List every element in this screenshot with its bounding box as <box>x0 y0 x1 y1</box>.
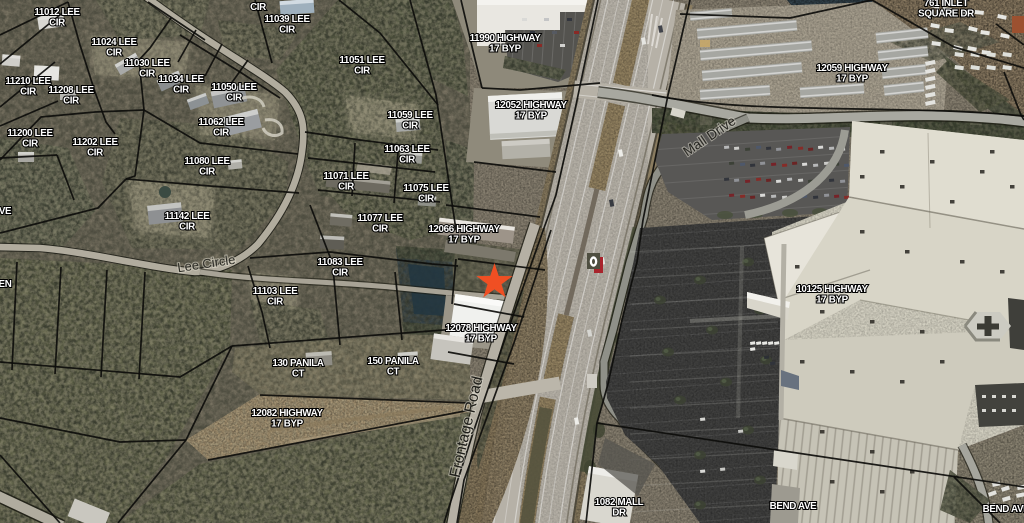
svg-text:BEND AVE: BEND AVE <box>983 504 1024 515</box>
svg-text:1082 MALL: 1082 MALL <box>595 497 644 508</box>
svg-text:11990 HIGHWAY: 11990 HIGHWAY <box>470 33 542 44</box>
svg-text:DR: DR <box>612 508 626 519</box>
svg-text:CIR: CIR <box>354 66 370 77</box>
svg-text:11050 LEE: 11050 LEE <box>211 82 257 93</box>
svg-text:11077 LEE: 11077 LEE <box>357 213 403 224</box>
svg-text:11071 LEE: 11071 LEE <box>323 171 369 182</box>
svg-text:130 PANILA: 130 PANILA <box>272 358 324 369</box>
svg-text:17 BYP: 17 BYP <box>448 235 480 246</box>
svg-text:CIR: CIR <box>20 87 36 98</box>
svg-text:12078 HIGHWAY: 12078 HIGHWAY <box>445 323 517 334</box>
svg-text:CIR: CIR <box>418 194 434 205</box>
svg-text:CIR: CIR <box>279 25 295 36</box>
svg-text:12059 HIGHWAY: 12059 HIGHWAY <box>816 63 888 74</box>
svg-text:11059 LEE: 11059 LEE <box>387 110 433 121</box>
svg-text:17 BYP: 17 BYP <box>515 111 547 122</box>
svg-text:CIR: CIR <box>399 155 415 166</box>
svg-text:CIR: CIR <box>226 93 242 104</box>
svg-text:SQUARE DR: SQUARE DR <box>918 9 974 20</box>
svg-text:CIR: CIR <box>372 224 388 235</box>
svg-text:11062 LEE: 11062 LEE <box>198 117 244 128</box>
svg-text:CIR: CIR <box>338 182 354 193</box>
svg-text:CIR: CIR <box>179 222 195 233</box>
svg-text:CT: CT <box>292 369 305 380</box>
svg-text:11051 LEE: 11051 LEE <box>339 55 385 66</box>
svg-text:11075 LEE: 11075 LEE <box>403 183 449 194</box>
svg-text:CIR: CIR <box>402 121 418 132</box>
svg-text:12066 HIGHWAY: 12066 HIGHWAY <box>428 224 500 235</box>
svg-text:11202 LEE: 11202 LEE <box>72 137 118 148</box>
svg-text:CIR: CIR <box>49 18 65 29</box>
svg-text:17 BYP: 17 BYP <box>816 295 848 306</box>
svg-text:11083 LEE: 11083 LEE <box>317 257 363 268</box>
svg-text:11210 LEE: 11210 LEE <box>5 76 51 87</box>
svg-text:11039 LEE: 11039 LEE <box>264 14 310 25</box>
svg-text:CIR: CIR <box>22 139 38 150</box>
svg-text:11103 LEE: 11103 LEE <box>253 286 299 297</box>
svg-text:CIR: CIR <box>267 297 283 308</box>
svg-text:EN: EN <box>0 279 12 290</box>
svg-text:11142 LEE: 11142 LEE <box>165 211 211 222</box>
svg-text:11012 LEE: 11012 LEE <box>34 7 80 18</box>
svg-text:CIR: CIR <box>332 268 348 279</box>
svg-text:12082 HIGHWAY: 12082 HIGHWAY <box>251 408 323 419</box>
svg-text:17 BYP: 17 BYP <box>836 74 868 85</box>
svg-text:150 PANILA: 150 PANILA <box>367 356 419 367</box>
svg-text:CIR: CIR <box>173 85 189 96</box>
svg-text:17 BYP: 17 BYP <box>489 44 521 55</box>
svg-text:CT: CT <box>387 367 400 378</box>
svg-text:11063 LEE: 11063 LEE <box>384 144 430 155</box>
svg-text:11080 LEE: 11080 LEE <box>184 156 230 167</box>
svg-text:CIR: CIR <box>87 148 103 159</box>
svg-text:CIR: CIR <box>250 2 266 13</box>
svg-text:11024 LEE: 11024 LEE <box>91 37 137 48</box>
svg-text:17 BYP: 17 BYP <box>465 334 497 345</box>
svg-text:12052 HIGHWAY: 12052 HIGHWAY <box>495 100 567 111</box>
svg-text:VE: VE <box>0 206 12 217</box>
svg-text:CIR: CIR <box>199 167 215 178</box>
svg-text:CIR: CIR <box>139 69 155 80</box>
svg-text:CIR: CIR <box>106 48 122 59</box>
svg-text:11208 LEE: 11208 LEE <box>48 85 94 96</box>
svg-text:10125 HIGHWAY: 10125 HIGHWAY <box>796 284 868 295</box>
svg-text:CIR: CIR <box>63 96 79 107</box>
svg-text:11200 LEE: 11200 LEE <box>7 128 53 139</box>
svg-text:17 BYP: 17 BYP <box>271 419 303 430</box>
svg-text:11034 LEE: 11034 LEE <box>158 74 204 85</box>
svg-text:11030 LEE: 11030 LEE <box>124 58 170 69</box>
svg-text:CIR: CIR <box>213 128 229 139</box>
svg-text:BEND AVE: BEND AVE <box>770 501 818 512</box>
